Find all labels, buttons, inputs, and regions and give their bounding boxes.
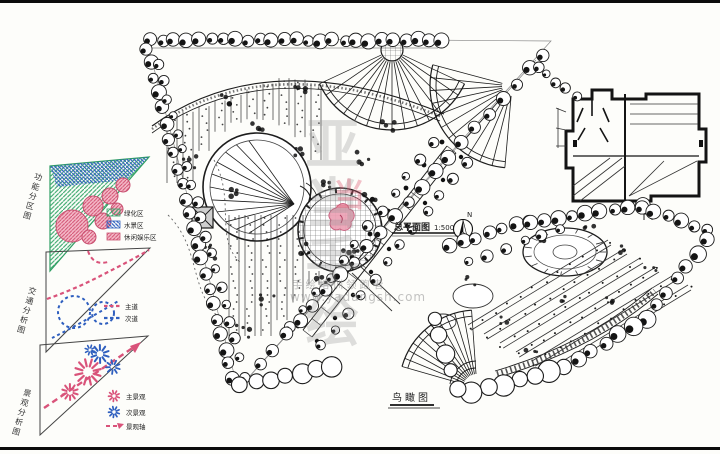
building-outer-wall <box>566 90 706 201</box>
zoning-diagram: 绿化区 水景区 休闲娱乐区 <box>50 157 157 271</box>
legend-label: 次道 <box>125 314 139 323</box>
legend-label: 景观轴 <box>126 422 146 431</box>
legend-star-main <box>109 391 120 402</box>
watermark-logo-glyph: 当 <box>333 170 365 216</box>
plan-scale: 1:500 <box>434 224 454 232</box>
landscape-legend: 主景观 次景观 景观轴 <box>106 391 146 431</box>
watermark-brand: 亚当手绘 <box>288 116 367 352</box>
landscape-stars <box>62 345 119 400</box>
legend-star-secondary <box>109 407 120 418</box>
north-label: N <box>467 211 472 219</box>
bottom-border-line <box>0 447 720 450</box>
top-border-line <box>0 0 720 3</box>
traffic-legend: 主道 次道 <box>104 302 139 323</box>
building-plan <box>534 62 706 201</box>
secondary-road <box>58 296 90 328</box>
birdseye-title: 鸟瞰图 <box>392 391 431 404</box>
birdseye-title-block: 鸟瞰图 <box>388 391 440 408</box>
legend-label: 次景观 <box>126 408 146 417</box>
interior-strokes <box>577 100 609 142</box>
sheet-canvas: 功能分区图 交通分析图 景观分析图 亚当手绘 当 手绘培训领跑者 www.yad… <box>0 0 720 454</box>
watermark-url: www.yadangsh.com <box>290 290 426 304</box>
traffic-diagram: 主道 次道 <box>46 248 150 352</box>
legend-label: 主景观 <box>126 392 146 401</box>
plan-title: 总平面图 <box>394 221 430 233</box>
legend-label: 绿化区 <box>124 209 144 218</box>
legend-label: 水景区 <box>124 221 144 230</box>
zoning-legend: 绿化区 水景区 休闲娱乐区 <box>107 209 157 242</box>
legend-label: 主道 <box>125 302 139 311</box>
legend-label: 休闲娱乐区 <box>124 233 157 242</box>
landscape-diagram: 主景观 次景观 景观轴 <box>40 336 148 435</box>
building-tree-chain <box>534 62 582 101</box>
